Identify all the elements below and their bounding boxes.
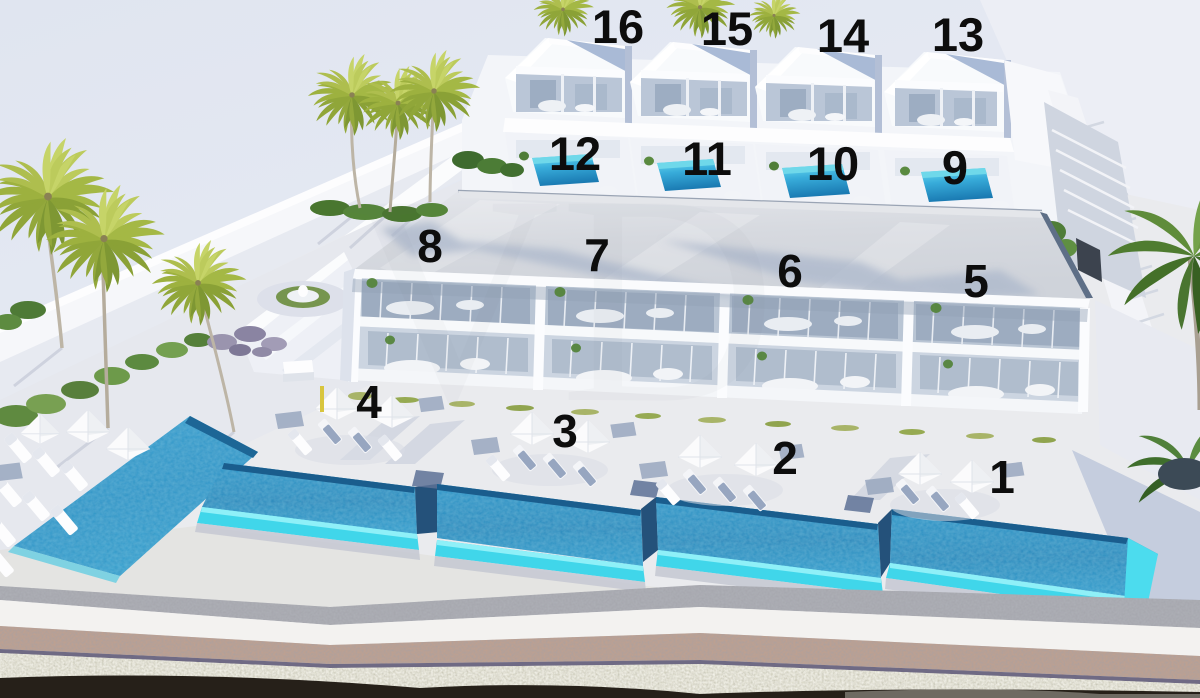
svg-text:11: 11 <box>682 132 732 185</box>
svg-text:12: 12 <box>549 127 601 180</box>
svg-text:14: 14 <box>817 9 869 62</box>
svg-text:9: 9 <box>942 141 968 194</box>
svg-text:6: 6 <box>777 245 803 297</box>
svg-text:5: 5 <box>963 255 989 307</box>
svg-text:3: 3 <box>552 405 578 457</box>
svg-text:15: 15 <box>701 2 753 55</box>
svg-text:4: 4 <box>356 376 382 428</box>
svg-text:13: 13 <box>932 8 984 61</box>
svg-text:16: 16 <box>592 0 644 53</box>
svg-text:10: 10 <box>807 137 859 190</box>
svg-text:2: 2 <box>772 432 798 484</box>
svg-text:7: 7 <box>584 229 610 281</box>
svg-text:1: 1 <box>989 451 1015 503</box>
svg-text:8: 8 <box>417 220 443 272</box>
